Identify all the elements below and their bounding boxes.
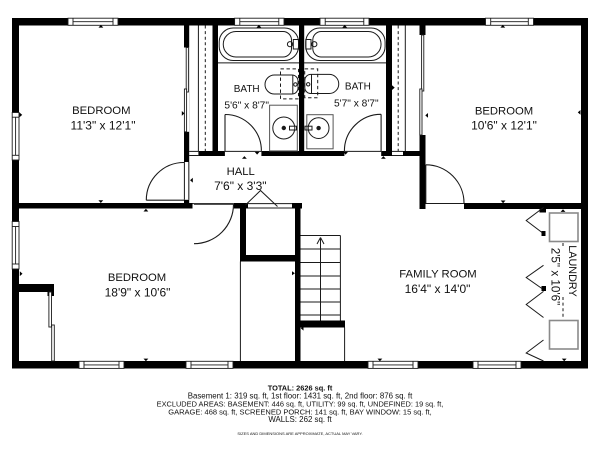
svg-text:BEDROOM: BEDROOM [72,105,130,117]
svg-text:5'6" x 8'7": 5'6" x 8'7" [224,101,269,112]
svg-text:HALL: HALL [227,166,255,178]
svg-text:BATH: BATH [234,84,260,95]
svg-text:BEDROOM: BEDROOM [475,106,533,118]
svg-text:10'6" x 12'1": 10'6" x 12'1" [471,119,537,133]
svg-text:WALLS: 262 sq. ft: WALLS: 262 sq. ft [268,415,332,424]
svg-text:2'5" x 10'6": 2'5" x 10'6" [549,248,562,306]
svg-text:BEDROOM: BEDROOM [108,272,166,284]
svg-text:7'6" x 3'3": 7'6" x 3'3" [214,179,266,193]
svg-text:LAUNDRY: LAUNDRY [566,245,578,296]
svg-text:16'4" x 14'0": 16'4" x 14'0" [405,282,471,296]
svg-text:FAMILY ROOM: FAMILY ROOM [399,269,476,281]
svg-text:11'3" x 12'1": 11'3" x 12'1" [71,118,136,132]
svg-text:5'7" x 8'7": 5'7" x 8'7" [334,99,379,110]
svg-text:18'9" x 10'6": 18'9" x 10'6" [105,286,171,300]
svg-text:BATH: BATH [345,82,371,93]
svg-text:SIZES AND DIMENSIONS ARE APPRO: SIZES AND DIMENSIONS ARE APPROXIMATE, AC… [237,431,362,436]
